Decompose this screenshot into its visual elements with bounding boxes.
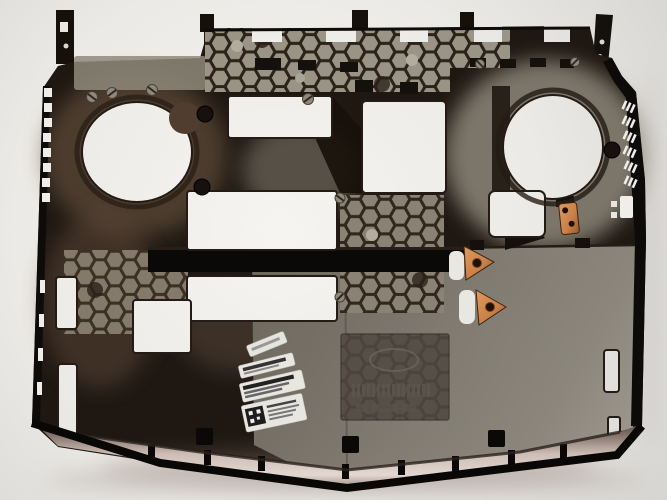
screw xyxy=(476,60,485,69)
upper-left-bay-opening xyxy=(228,96,332,138)
left-side-slot-b xyxy=(58,364,77,438)
left-side-slot-a xyxy=(56,277,77,329)
white-pad-upper xyxy=(449,251,464,280)
screw xyxy=(303,94,314,105)
below-right-fan-opening xyxy=(489,191,545,237)
top-rim xyxy=(204,28,590,30)
screw xyxy=(87,92,98,103)
center-bay-opening xyxy=(187,191,337,250)
screw xyxy=(335,292,345,302)
screw xyxy=(335,193,345,203)
laptop-bottom-case xyxy=(32,10,646,488)
screw xyxy=(571,58,580,67)
right-fan-opening xyxy=(503,95,603,199)
white-pad-lower xyxy=(459,290,475,324)
lower-center-bay-opening xyxy=(187,276,337,321)
scene xyxy=(0,0,667,500)
copper-bracket xyxy=(558,202,579,235)
photo-of-laptop-bottom-case xyxy=(0,0,667,500)
right-side-slot-a xyxy=(604,350,619,392)
screw xyxy=(147,85,158,96)
qr-code xyxy=(245,406,266,427)
regulatory-emboss-plate xyxy=(341,334,449,420)
upper-right-bay-opening xyxy=(362,101,446,193)
io-port-opening xyxy=(620,196,633,218)
screw xyxy=(107,88,118,99)
hinge-post-left xyxy=(56,10,74,64)
lower-left-bay-opening xyxy=(133,300,191,353)
